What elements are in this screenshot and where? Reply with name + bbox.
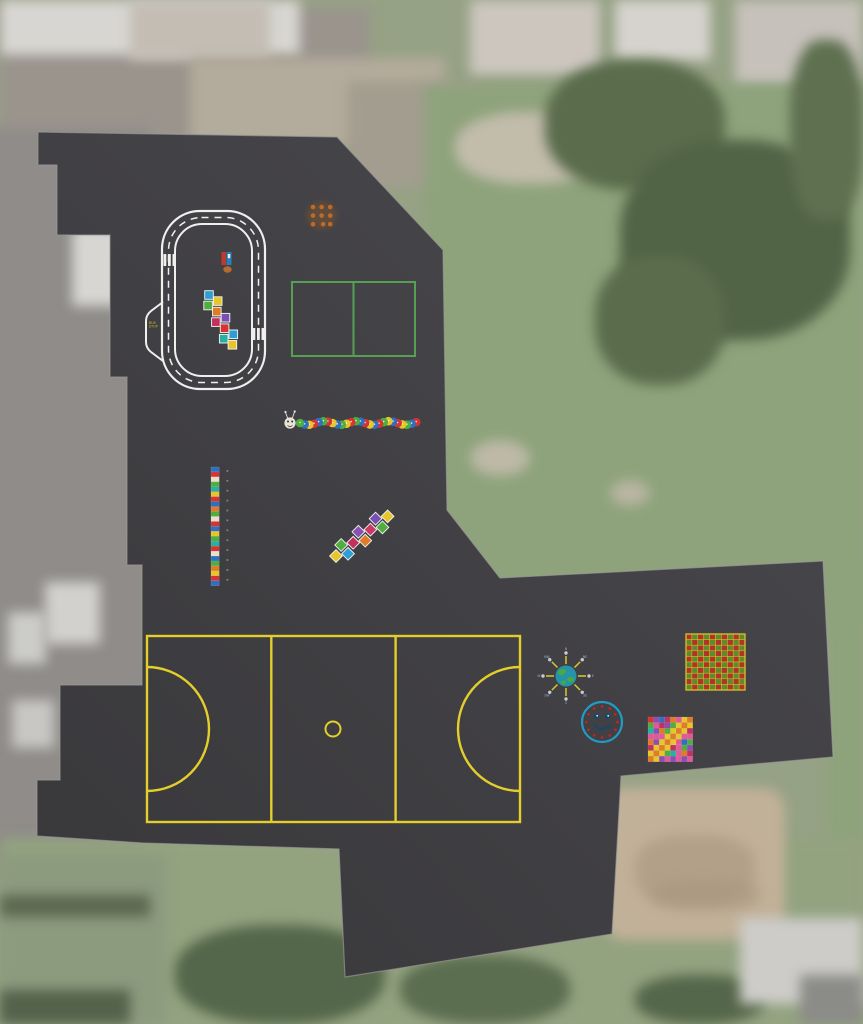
aerial-photo-canvas: BUSSTOP NN [0, 0, 863, 1024]
orange-dots-marking [307, 202, 337, 230]
hundred-square-grid-marking [686, 634, 745, 690]
svg-text:NE: NE [583, 655, 587, 659]
zebra-crossing-left [164, 254, 176, 266]
playground-plan-overlay: BUSSTOP NN [0, 0, 863, 1024]
svg-text:SW: SW [544, 693, 550, 697]
svg-text:SE: SE [583, 693, 587, 697]
svg-text:E: E [592, 674, 594, 678]
svg-text:S: S [565, 701, 567, 705]
zebra-crossing-right [253, 328, 265, 340]
compass-globe-sea [556, 666, 577, 687]
tarmac-playground-surface [37, 132, 833, 977]
snakes-ladders-grid-marking [648, 717, 693, 762]
svg-text:NW: NW [544, 655, 550, 659]
